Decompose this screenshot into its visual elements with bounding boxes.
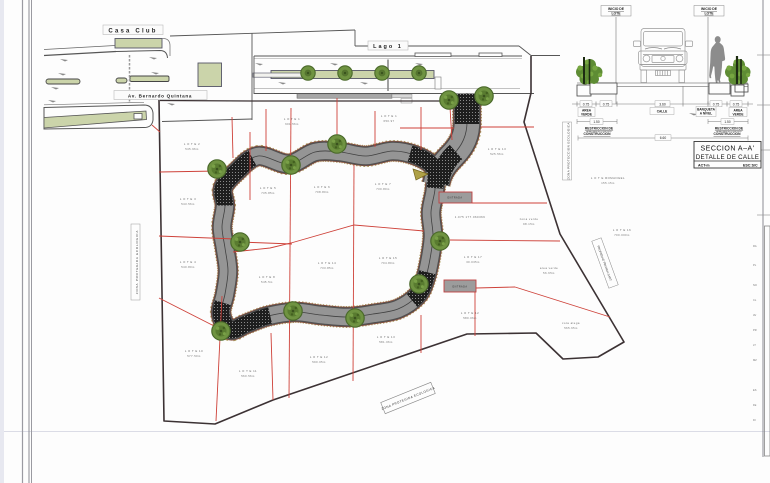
svg-text:565.65m: 565.65m [564,326,578,330]
svg-text:ACT-m: ACT-m [698,164,710,168]
svg-text:545.5m: 545.5m [261,280,273,284]
svg-text:0.75: 0.75 [733,103,740,107]
svg-text:0.75: 0.75 [583,103,590,107]
svg-text:545.96m: 545.96m [185,147,199,151]
svg-text:zona verde: zona verde [520,217,539,221]
svg-text:area verde: area verde [540,266,558,270]
svg-text:L O T E 15: L O T E 15 [379,256,397,260]
svg-text:650.97: 650.97 [384,119,395,123]
svg-text:L O T E 11: L O T E 11 [239,369,257,373]
svg-text:Lago 1: Lago 1 [373,44,403,50]
svg-text:ESC:S/C: ESC:S/C [743,164,758,168]
svg-text:1.50: 1.50 [593,120,599,124]
svg-text:AV: AV [753,313,757,317]
svg-text:ZONA PROTECCION ECOLOGICA: ZONA PROTECCION ECOLOGICA [567,122,571,180]
svg-text:601.56m: 601.56m [285,122,299,126]
svg-text:LOTE: LOTE [704,12,714,16]
svg-text:CL: CL [753,298,757,302]
svg-text:ENTRADA: ENTRADA [453,286,468,289]
svg-text:DI: DI [753,418,756,422]
svg-text:560.56m: 560.56m [241,374,255,378]
svg-text:590.05m: 590.05m [312,360,326,364]
svg-text:L O T E 17: L O T E 17 [464,255,482,259]
svg-text:ENTRADA: ENTRADA [448,197,463,200]
svg-text:580.06m: 580.06m [463,316,477,320]
svg-text:LT: LT [753,343,756,347]
svg-text:700.000m: 700.000m [614,233,630,237]
svg-text:CALLE: CALLE [657,110,668,114]
svg-text:NO: NO [753,283,757,287]
svg-text:INICIO DE: INICIO DE [701,7,718,11]
svg-text:RESTRICCION DE: RESTRICCION DE [585,127,614,131]
svg-text:Casa Club: Casa Club [108,29,157,35]
svg-text:L O T E 10: L O T E 10 [185,349,203,353]
svg-text:98.15m: 98.15m [523,222,535,226]
svg-text:0.75: 0.75 [603,103,610,107]
svg-text:L O T E 13: L O T E 13 [488,147,506,151]
svg-text:1.075 177.060366: 1.075 177.060366 [455,215,486,219]
svg-text:155.15m: 155.15m [601,181,615,185]
svg-text:L O T E 1: L O T E 1 [284,117,300,121]
svg-text:ZONA PROTEGIDA ECOLOGICA: ZONA PROTEGIDA ECOLOGICA [135,230,139,294]
svg-text:704.80m: 704.80m [381,261,395,265]
svg-text:L O T E 2: L O T E 2 [184,142,200,146]
svg-text:525.56m: 525.56m [490,152,504,156]
svg-text:L O T E 12: L O T E 12 [310,355,328,359]
svg-text:L O T E ROMANGEL: L O T E ROMANGEL [591,176,625,180]
svg-text:L O T E 14: L O T E 14 [318,261,336,265]
svg-text:AREA LIBRE SIN CONSTRUIR: AREA LIBRE SIN CONSTRUIR [716,130,742,133]
svg-text:L O T E 6: L O T E 6 [314,185,330,189]
svg-text:INICIO DE: INICIO DE [608,7,625,11]
svg-text:735.85m: 735.85m [261,191,275,195]
svg-text:708.80m: 708.80m [315,190,329,194]
svg-text:L O T E 8: L O T E 8 [259,275,275,279]
svg-text:ES: ES [753,388,757,392]
svg-text:1.50: 1.50 [724,120,730,124]
svg-text:FE: FE [753,403,757,407]
svg-text:L O T E 7: L O T E 7 [375,182,391,186]
svg-text:L O T E 13: L O T E 13 [377,335,395,339]
svg-text:733.85m: 733.85m [320,266,334,270]
svg-text:6.60: 6.60 [660,136,667,140]
svg-text:Av. Bernardo Quintana: Av. Bernardo Quintana [128,94,192,99]
svg-text:DETALLE DE CALLE: DETALLE DE CALLE [696,154,760,161]
svg-text:L O T E 5: L O T E 5 [260,186,276,190]
svg-text:L O T E 12: L O T E 12 [461,311,479,315]
svg-text:L O T E 16: L O T E 16 [613,228,631,232]
svg-text:AREA LIBRE SIN CONSTRUIR: AREA LIBRE SIN CONSTRUIR [586,130,612,133]
svg-text:577.50m: 577.50m [187,354,201,358]
svg-text:SECCION A–A': SECCION A–A' [700,146,754,153]
svg-text:30.035m: 30.035m [466,260,480,264]
svg-text:VERDE: VERDE [733,113,744,117]
svg-text:3.60: 3.60 [659,103,666,107]
svg-text:L O T E 4: L O T E 4 [180,260,196,264]
svg-text:543.56m: 543.56m [181,202,195,206]
svg-text:730.80m: 730.80m [376,187,390,191]
svg-text:0.75: 0.75 [713,103,720,107]
svg-text:MZ: MZ [753,358,757,362]
svg-text:56.65m: 56.65m [543,271,555,275]
svg-text:581.06m: 581.06m [379,340,393,344]
svg-text:cota alega: cota alega [562,321,580,325]
svg-text:VERDE: VERDE [581,113,592,117]
svg-text:PR: PR [753,328,757,332]
svg-text:L O T E 3: L O T E 3 [180,197,196,201]
svg-text:A NIVEL: A NIVEL [700,112,713,116]
svg-text:LOTE: LOTE [611,12,621,16]
svg-text:RESTRICCION DE: RESTRICCION DE [715,127,744,131]
svg-text:RA: RA [753,244,757,248]
svg-text:L O T E 1: L O T E 1 [381,114,397,118]
svg-text:540.80m: 540.80m [181,265,195,269]
svg-text:PL: PL [753,263,757,267]
